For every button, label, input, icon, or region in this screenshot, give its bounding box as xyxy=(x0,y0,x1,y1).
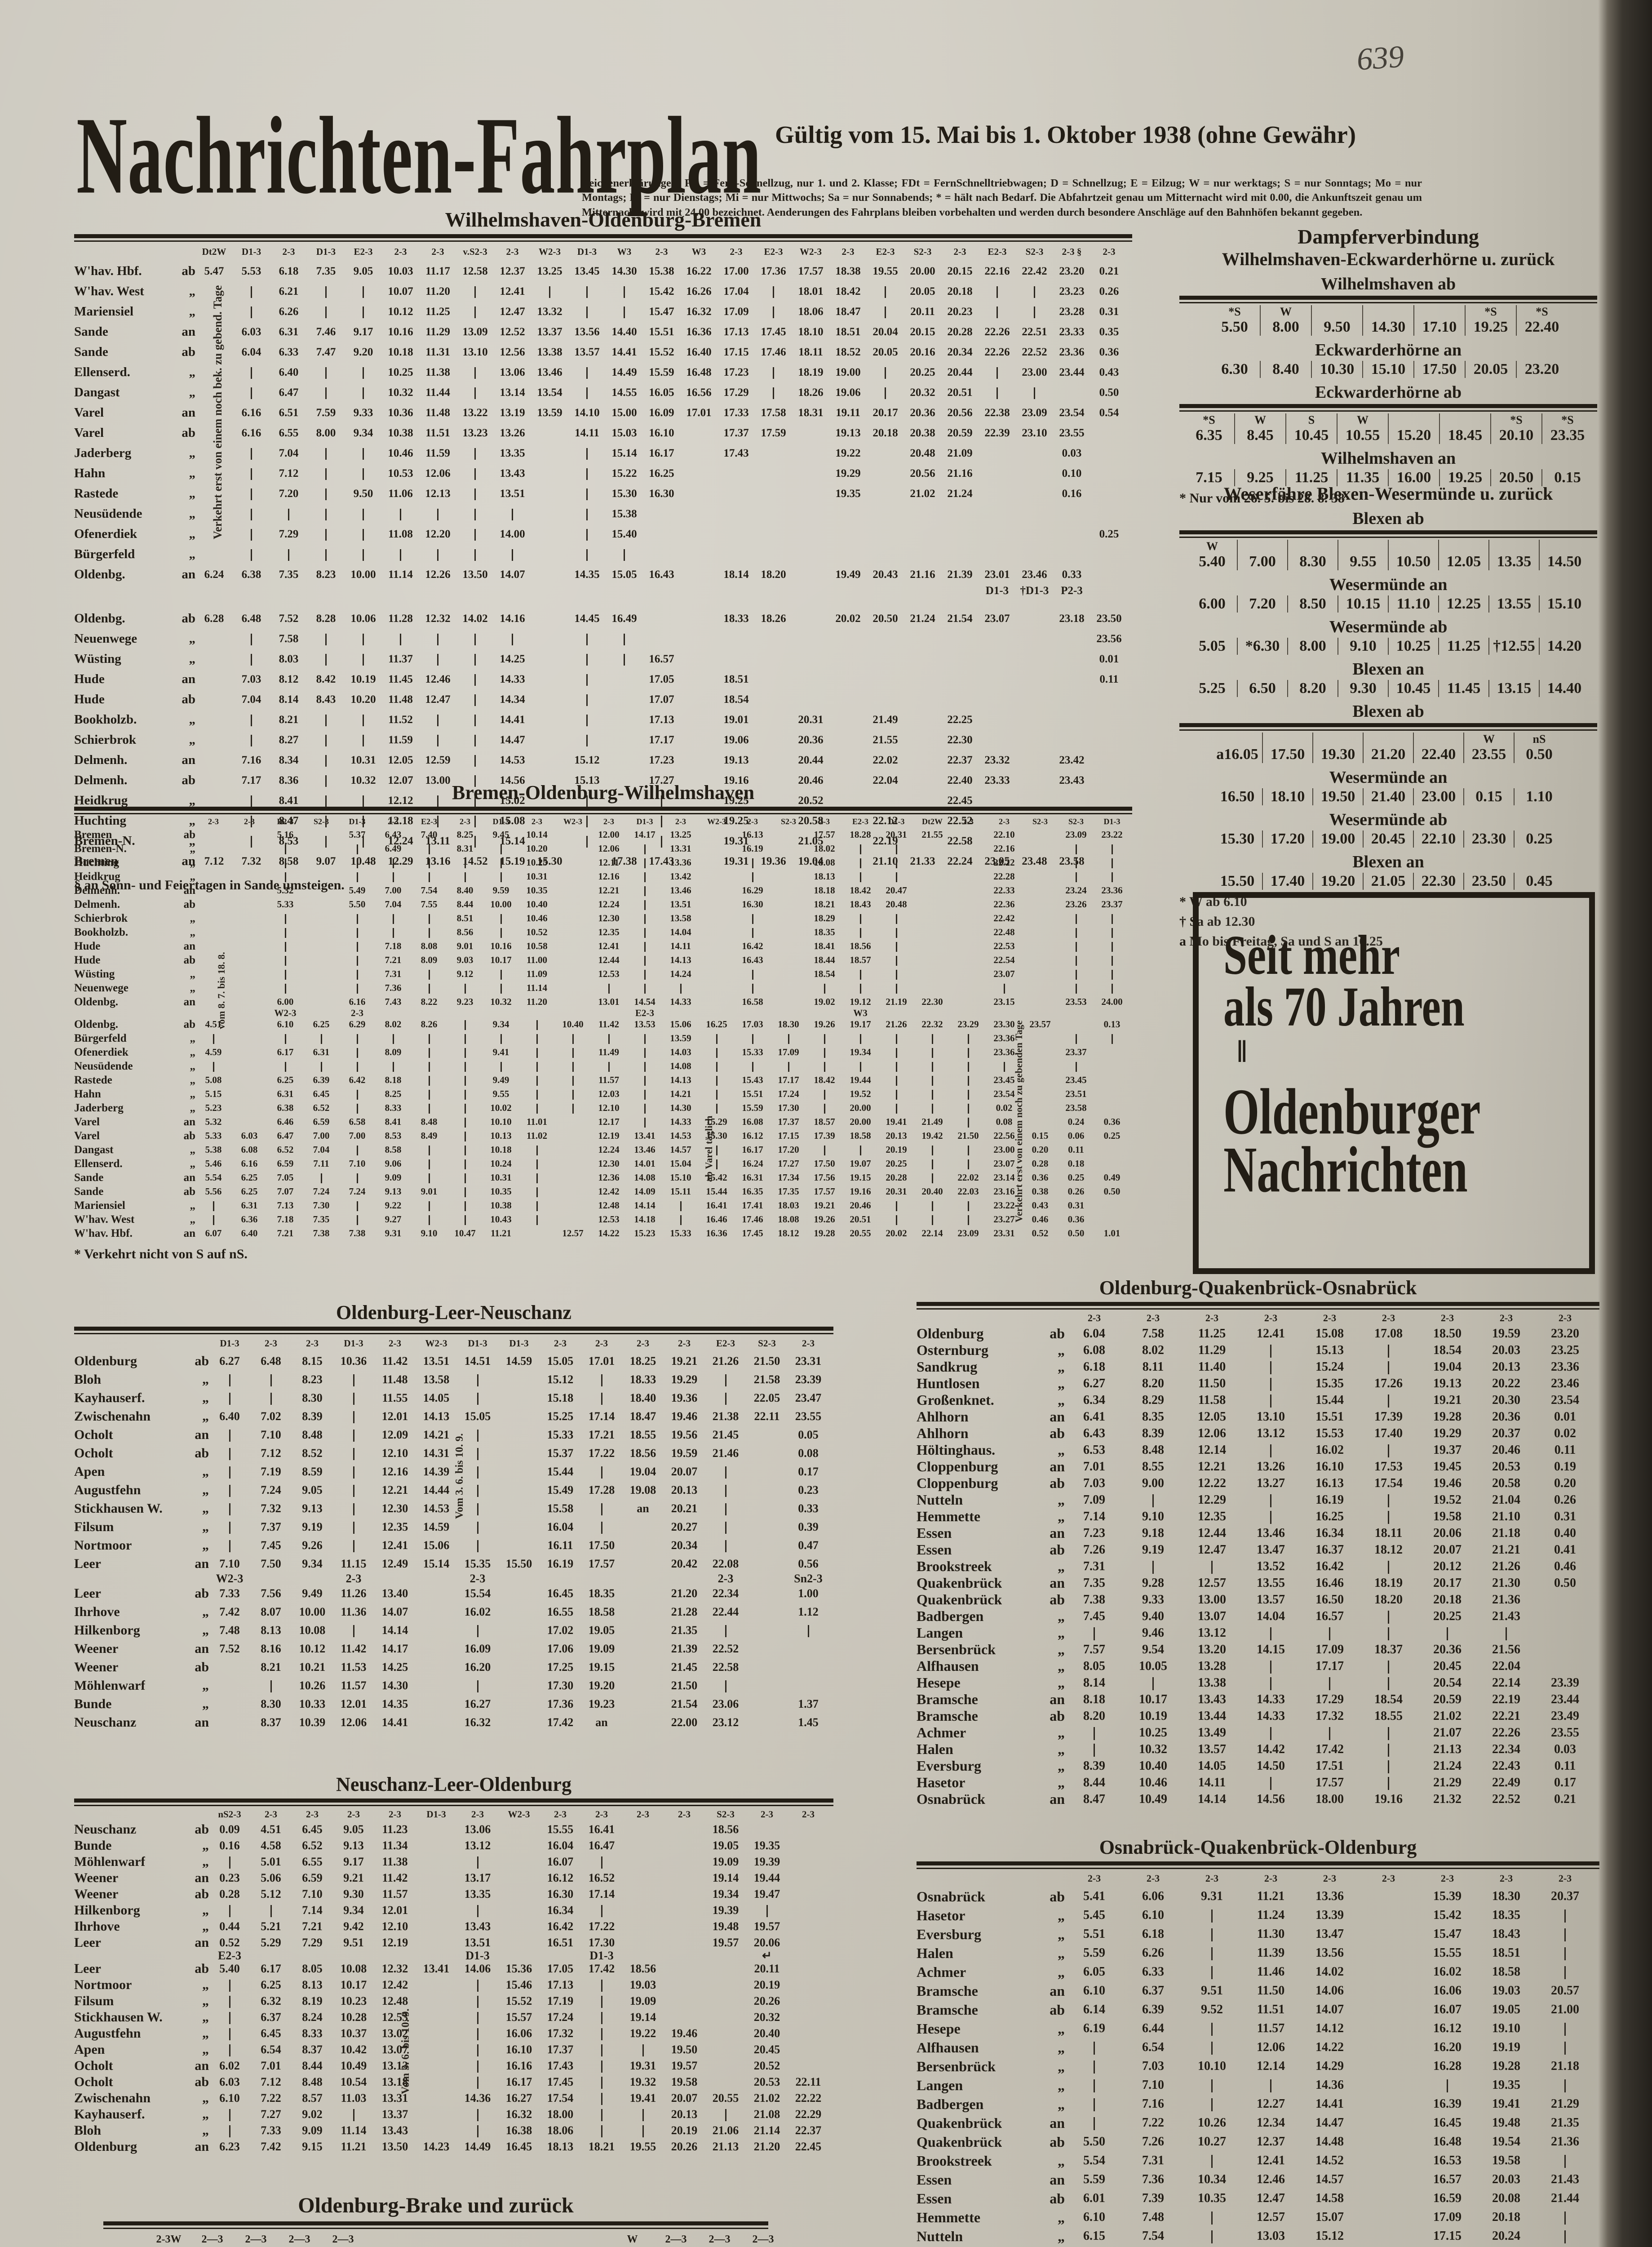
time-cell: 17.17 xyxy=(1300,1659,1359,1674)
time-cell: 10.24 xyxy=(483,1158,519,1169)
rotated-note: Verkehrt erst von einem noch zu gebenden… xyxy=(1013,1034,1025,1222)
station-name: Delmenh. xyxy=(74,753,127,768)
time-cell: 13.56 xyxy=(568,326,606,338)
time-cell: 2-3 xyxy=(447,817,483,826)
time-cell: 19.48 xyxy=(1477,2116,1536,2130)
time-cell xyxy=(457,2059,498,2073)
time-cell: 2-3 xyxy=(664,1338,705,1349)
time-cell: 22.11 xyxy=(746,1410,788,1423)
time-cell: 20.03 xyxy=(1477,1343,1536,1358)
time-cell: 7.22 xyxy=(250,2092,292,2105)
station-name: Bookholzb. xyxy=(74,712,137,727)
stop-skip-bar xyxy=(500,872,502,882)
time-cell: 23.57 xyxy=(1022,1019,1058,1030)
time-cell: 16.50 xyxy=(1213,788,1262,805)
time-cell xyxy=(771,1061,806,1072)
time-cell: 8.39 xyxy=(292,1410,333,1423)
time-cell: 14.20 xyxy=(1539,638,1589,655)
stop-skip-bar xyxy=(353,1503,354,1515)
table-row: Ocholtab6.037.128.4810.5413.1816.1717.45… xyxy=(74,2074,833,2090)
time-cell xyxy=(627,899,663,910)
station-cell: Oldenburgan xyxy=(74,2139,209,2154)
station-cell: Achmer„ xyxy=(917,1724,1065,1741)
stop-skip-bar xyxy=(997,306,998,318)
time-cell: 17.30 xyxy=(581,1936,622,1949)
time-cell xyxy=(1241,1509,1300,1523)
time-cell: 23.09 xyxy=(1058,829,1094,840)
station-name: Ellenserd. xyxy=(74,1158,123,1170)
time-cell xyxy=(581,2124,622,2138)
time-cell: 17.23 xyxy=(717,366,755,379)
stop-skip-bar xyxy=(824,1048,825,1058)
time-cell xyxy=(457,1978,498,1992)
stop-skip-bar xyxy=(474,468,476,480)
stop-skip-bar xyxy=(680,1215,682,1225)
time-cell: 19.58 xyxy=(1418,1510,1477,1524)
time-cell: 22.14 xyxy=(1477,1676,1536,1690)
stop-skip-bar xyxy=(437,549,438,561)
time-cell xyxy=(581,2043,622,2057)
table-row: Dangast„5.386.086.527.048.5810.1812.2413… xyxy=(74,1143,1132,1157)
time-cell: 20.07 xyxy=(664,2092,705,2105)
train-mark xyxy=(1363,733,1413,746)
stop-skip-bar xyxy=(725,1503,726,1515)
time-cell: 16.20 xyxy=(457,1661,498,1674)
time-cell: 21.45 xyxy=(664,1661,705,1674)
time-cell: 12.53 xyxy=(591,968,627,980)
table-row: Nortmoor„6.258.1310.1712.4215.4617.1319.… xyxy=(74,1977,833,1993)
time-cell xyxy=(1124,1675,1183,1690)
time-cell xyxy=(519,1214,555,1225)
stop-skip-bar xyxy=(716,1034,717,1044)
newspaper-page: 639 Nachrichten-Fahrplan Gültig vom 15. … xyxy=(0,0,1652,2247)
time-cell: 13.23 xyxy=(456,427,494,440)
time-cell: 9.30 xyxy=(333,1887,374,1901)
station-name: Hemmette xyxy=(917,2209,980,2226)
station-cell: Hudean xyxy=(74,940,195,953)
stop-skip-bar xyxy=(644,928,646,938)
time-cell: 17.57 xyxy=(581,1557,622,1571)
time-cell xyxy=(333,1446,374,1460)
station-cell: Oldenburgab xyxy=(917,1325,1065,1342)
stop-skip-bar xyxy=(474,529,476,541)
time-cell: 17.42 xyxy=(1300,1742,1359,1757)
time-cell: 13.25 xyxy=(663,829,699,840)
time-cell: 0.46 xyxy=(1022,1214,1058,1225)
time-cell xyxy=(333,1372,374,1386)
time-cell xyxy=(339,1144,375,1155)
departure-arrival-label: an xyxy=(182,405,195,420)
ad-line: als 70 Jahren xyxy=(1223,974,1554,1039)
time-cell: 12.47 xyxy=(419,693,456,706)
departure-arrival-label: ab xyxy=(1050,2002,1065,2018)
departure-arrival-label: „ xyxy=(1058,2209,1065,2226)
direction-label: Wesermünde ab xyxy=(1179,617,1597,637)
time-cell: 18.10 xyxy=(792,326,829,338)
time-cell: 20.18 xyxy=(1418,1593,1477,1607)
station-name: Nortmoor xyxy=(74,1538,132,1553)
stop-skip-bar xyxy=(586,509,588,520)
time-cell: 6.27 xyxy=(1065,1377,1124,1391)
time-cell: 17.05 xyxy=(643,673,680,686)
time-cell: 16.58 xyxy=(735,996,771,1008)
time-cell: 6.21 xyxy=(270,285,307,298)
time-cell: W2-3 xyxy=(699,817,735,826)
time-cell: 17.14 xyxy=(581,1410,622,1423)
time-cell: 19.22 xyxy=(829,447,867,460)
stop-skip-bar xyxy=(860,1146,861,1155)
stop-skip-bar xyxy=(465,1118,466,1128)
table-row: Leeran0.525.297.299.5112.1913.5116.5117.… xyxy=(74,1935,833,1951)
time-cell xyxy=(267,1061,303,1072)
station-name: Halen xyxy=(917,1945,953,1962)
time-cell: 5.59 xyxy=(1065,1946,1124,1960)
time-cell: 15.35 xyxy=(457,1557,498,1571)
time-cell: 0.40 xyxy=(1536,1526,1594,1541)
time-cell: 17.04 xyxy=(717,285,755,298)
stop-skip-bar xyxy=(1094,1744,1095,1757)
time-cell xyxy=(333,1501,374,1515)
time-cell: 22.21 xyxy=(1477,1709,1536,1723)
time-cell: 20.28 xyxy=(941,326,979,338)
time-cell: 11.45 xyxy=(382,673,419,686)
time-cell: 8.37 xyxy=(250,1716,292,1729)
time-cell: 12.05 xyxy=(382,754,419,767)
stop-skip-bar xyxy=(586,735,588,746)
time-cell xyxy=(1065,1742,1124,1756)
time-cell: 12.37 xyxy=(494,265,531,278)
stop-skip-bar xyxy=(860,1062,861,1072)
time-cell: 18.35 xyxy=(806,927,842,938)
time-cell: 15.12 xyxy=(1300,2229,1359,2243)
table-row: Oldenburgab6.276.488.1510.3611.4213.5114… xyxy=(74,1352,833,1370)
stop-skip-bar xyxy=(325,634,327,645)
station-cell: Leerab xyxy=(74,1961,209,1976)
time-cell: 9.05 xyxy=(292,1483,333,1497)
station-cell: W'hav. West„ xyxy=(74,1213,195,1226)
stop-skip-bar xyxy=(1270,1677,1271,1690)
time-cell: 15.58 xyxy=(540,1502,581,1515)
time-cell: 20.55 xyxy=(842,1228,878,1239)
station-cell: Sandean xyxy=(74,1172,195,1184)
stop-skip-bar xyxy=(393,872,394,882)
table-row: Filsum„6.328.1910.2312.4815.5217.1919.09… xyxy=(74,1993,833,2009)
stop-skip-bar xyxy=(229,1374,230,1386)
time-cell: 17.56 xyxy=(806,1172,842,1183)
stop-skip-bar xyxy=(896,872,897,882)
time-cell: 9.01 xyxy=(447,941,483,952)
departure-arrival-label: ab xyxy=(195,1446,209,1461)
time-cell: 11.55 xyxy=(374,1391,416,1405)
departure-arrival-label: an xyxy=(182,672,195,687)
time-cell xyxy=(606,632,643,645)
time-cell: 9.54 xyxy=(1124,1643,1183,1657)
time-cell xyxy=(568,632,606,645)
departure-arrival-label: ab xyxy=(1050,2134,1065,2150)
time-cell: 20.05 xyxy=(904,285,941,298)
stop-skip-bar xyxy=(357,984,358,994)
time-cell: 14.52 xyxy=(1300,2154,1359,2168)
time-cell xyxy=(209,1465,250,1479)
time-cell xyxy=(250,1679,292,1692)
time-cell xyxy=(267,913,303,924)
stop-skip-bar xyxy=(500,970,502,980)
time-cell: 20.53 xyxy=(746,2075,788,2089)
time-cell: 11.25 xyxy=(419,306,456,318)
time-cell: 20.45 xyxy=(1418,1659,1477,1674)
departure-arrival-label: an xyxy=(195,1556,209,1572)
stop-skip-bar xyxy=(586,367,588,379)
station-name: Heidkrug xyxy=(74,870,120,883)
time-cell: 7.00 xyxy=(303,1130,339,1141)
time-cell xyxy=(950,1075,986,1086)
time-cell: 21.38 xyxy=(705,1410,746,1423)
time-cell: 18.54 xyxy=(1359,1692,1418,1707)
time-cell: 10.25 xyxy=(382,366,419,379)
time-cell: 14.41 xyxy=(374,1716,416,1729)
time-cell: 0.28 xyxy=(1022,1158,1058,1169)
time-cell: 18.58 xyxy=(581,1605,622,1619)
time-cell: 17.29 xyxy=(1300,1692,1359,1707)
stop-skip-bar xyxy=(644,1104,646,1114)
time-cell xyxy=(627,871,663,882)
stop-skip-bar xyxy=(357,914,358,924)
time-cell xyxy=(914,1158,950,1169)
time-cell: 6.55 xyxy=(292,1855,333,1869)
time-cell: 21.35 xyxy=(664,1624,705,1637)
stop-skip-bar xyxy=(400,634,401,645)
time-cell: 10.25 xyxy=(519,857,555,868)
train-mark: *S xyxy=(1465,305,1516,319)
table-title: Oldenburg-Leer-Neuschanz xyxy=(74,1301,833,1324)
time-cell: 16.30 xyxy=(643,488,680,500)
time-cell xyxy=(1359,1559,1418,1573)
time-cell: 22.58 xyxy=(705,1661,746,1674)
departure-arrival-label: „ xyxy=(190,1199,196,1212)
time-cell: 6.10 xyxy=(209,2092,250,2105)
station-cell: Eversburg„ xyxy=(917,1758,1065,1774)
time-cell xyxy=(581,1855,622,1869)
station-cell: Cloppenburgab xyxy=(917,1475,1065,1492)
time-cell: 19.34 xyxy=(842,1047,878,1058)
stop-skip-bar xyxy=(363,367,364,379)
time-cell: 0.21 xyxy=(1090,265,1128,278)
time-cell: 21.24 xyxy=(941,488,979,500)
station-cell: Brookstreek„ xyxy=(917,2153,1065,2169)
time-cell: 20.00 xyxy=(842,1116,878,1128)
time-cell xyxy=(303,1061,339,1072)
time-cell: 21.18 xyxy=(1536,2059,1594,2074)
time-cell: 16.48 xyxy=(1418,2135,1477,2149)
stop-skip-bar xyxy=(1270,1378,1271,1391)
time-cell: 14.30 xyxy=(663,1102,699,1114)
times-row: 15.3017.2019.0020.4522.1023.300.25 xyxy=(1179,830,1597,848)
departure-arrival-label: „ xyxy=(1058,2039,1065,2056)
time-cell: 2-3 xyxy=(746,1809,788,1820)
station-name: Apen xyxy=(74,2042,105,2057)
time-cell: 18.47 xyxy=(829,306,867,318)
station-cell: Hahn„ xyxy=(74,1088,195,1101)
time-cell xyxy=(914,1144,950,1155)
time-cell xyxy=(1094,955,1130,966)
station-name: Hesepe xyxy=(917,2021,961,2037)
stop-skip-bar xyxy=(1388,1677,1389,1690)
stop-skip-bar xyxy=(642,2125,644,2137)
time-cell: 8.30 xyxy=(1287,553,1338,570)
table-row: Ofenerdiek„7.2911.0812.2014.0015.400.25 xyxy=(74,524,1132,544)
time-cell: 8.25 xyxy=(447,829,483,840)
time-cell xyxy=(411,913,447,924)
stop-skip-bar xyxy=(477,1905,478,1917)
time-cell xyxy=(842,1033,878,1044)
time-cell: 18.54 xyxy=(806,968,842,980)
time-cell: 6.19 xyxy=(1065,2021,1124,2036)
sub-header-row: E2-3D1-3D1-3↵ xyxy=(74,1951,833,1961)
time-cell: 17.09 xyxy=(1418,2210,1477,2225)
time-cell: 2-3 xyxy=(292,1809,333,1820)
time-cell: 16.45 xyxy=(1418,2116,1477,2130)
stop-skip-bar xyxy=(896,984,897,994)
time-cell: 9.09 xyxy=(375,1172,411,1183)
time-cell xyxy=(1359,1759,1418,1773)
time-cell: 16.32 xyxy=(680,306,717,318)
departure-arrival-label: „ xyxy=(202,1977,209,1993)
time-cell: 18.54 xyxy=(1418,1343,1477,1358)
time-cell: 15.59 xyxy=(643,366,680,379)
time-cell xyxy=(1241,1343,1300,1357)
time-cell: 11.31 xyxy=(419,346,456,359)
time-cell: 10.18 xyxy=(382,346,419,359)
time-cell: 15.55 xyxy=(540,1823,581,1836)
stop-skip-bar xyxy=(353,1466,354,1479)
departure-arrival-label: „ xyxy=(202,1854,209,1870)
time-cell: 21.20 xyxy=(664,1587,705,1600)
departure-arrival-label: „ xyxy=(190,968,196,981)
time-cell: 0.25 xyxy=(1094,1130,1130,1141)
time-cell xyxy=(663,1214,699,1225)
time-cell: 23.20 xyxy=(1536,1327,1594,1341)
time-cell: 23.47 xyxy=(788,1391,829,1405)
time-cell xyxy=(606,548,643,560)
departure-arrival-label: „ xyxy=(189,446,196,461)
time-cell: 15.33 xyxy=(540,1428,581,1442)
time-cell: 14.47 xyxy=(1300,2116,1359,2130)
station-name: Varel xyxy=(74,426,104,440)
stop-skip-bar xyxy=(229,1522,230,1534)
time-cell xyxy=(209,1855,250,1869)
time-cell: 16.25 xyxy=(1300,1510,1359,1524)
time-cell: 22.38 xyxy=(979,407,1016,419)
time-cell xyxy=(307,305,345,318)
table-row: Hudeab7.048.148.4310.2011.4812.4714.3417… xyxy=(74,689,1132,710)
station-name: Ihrhove xyxy=(74,1919,120,1934)
time-cell: 14.08 xyxy=(663,1061,699,1072)
table-row: Quakenbrückab5.507.2610.2712.3714.4816.4… xyxy=(917,2132,1599,2151)
time-cell: 20.19 xyxy=(746,1978,788,1992)
time-cell: 7.00 xyxy=(375,885,411,896)
stop-skip-bar xyxy=(896,970,897,980)
time-cell: 12.17 xyxy=(591,1116,627,1128)
station-name: Hude xyxy=(74,940,100,953)
time-cell xyxy=(1536,2040,1594,2055)
time-cell: 10.35 xyxy=(1183,2191,1241,2206)
departure-arrival-label: „ xyxy=(1058,1964,1065,1981)
group-rule xyxy=(1179,530,1597,538)
station-cell: Neusüdende„ xyxy=(74,1060,195,1073)
stop-skip-bar xyxy=(512,634,513,645)
time-cell xyxy=(705,1501,746,1515)
stop-skip-bar xyxy=(357,858,358,868)
time-cell: 23.07 xyxy=(986,968,1022,980)
time-cell: 7.33 xyxy=(209,1587,250,1600)
time-cell: 19.57 xyxy=(705,1936,746,1949)
time-cell: 0.24 xyxy=(1058,1116,1094,1128)
table-top-rule xyxy=(917,1861,1599,1869)
time-cell: 19.42 xyxy=(914,1130,950,1141)
time-cell: 0.41 xyxy=(1536,1543,1594,1557)
station-cell: Brookstreek„ xyxy=(917,1558,1065,1575)
station-name: Achmer xyxy=(917,1724,966,1741)
station-name: Hilkenborg xyxy=(74,1623,140,1638)
station-cell: Bloh„ xyxy=(74,1372,209,1387)
time-cell xyxy=(735,1033,771,1044)
stop-skip-bar xyxy=(808,1625,809,1637)
time-cell: 13.49 xyxy=(1183,1726,1241,1740)
time-cell: 9.17 xyxy=(333,1855,374,1869)
time-cell: 12.47 xyxy=(1183,1543,1241,1557)
time-cell: 8.30 xyxy=(250,1697,292,1711)
time-cell: 22.22 xyxy=(986,857,1022,868)
time-cell: 9.55 xyxy=(483,1088,519,1100)
time-cell: 17.39 xyxy=(1359,1410,1418,1424)
time-cell: 21.55 xyxy=(914,829,950,840)
stop-skip-bar xyxy=(968,1146,969,1155)
time-cell: 16.43 xyxy=(643,568,680,581)
time-cell xyxy=(233,386,270,399)
time-cell: 16.57 xyxy=(643,653,680,666)
train-mark: nS xyxy=(1514,733,1564,746)
time-cell xyxy=(209,2124,250,2138)
stop-skip-bar xyxy=(1034,286,1035,298)
time-cell: 19.04 xyxy=(1418,1360,1477,1374)
time-cell: 21.16 xyxy=(941,467,979,480)
departure-arrival-label: an xyxy=(1050,1691,1065,1708)
time-cell: 16.17 xyxy=(735,1144,771,1155)
time-cell xyxy=(267,955,303,966)
time-cell xyxy=(1359,1509,1418,1523)
time-cell: 5.12 xyxy=(250,1887,292,1901)
time-cell: D1-3 xyxy=(457,1338,498,1349)
station-name: Bloh xyxy=(74,1372,101,1387)
time-cell: 14.53 xyxy=(663,1130,699,1141)
time-cell: 15.05 xyxy=(606,568,643,581)
time-cell xyxy=(339,968,375,980)
time-cell: 22.40 xyxy=(1516,319,1567,336)
departure-arrival-label: ab xyxy=(195,1887,209,1902)
time-cell xyxy=(735,1061,771,1072)
time-cell: 7.21 xyxy=(267,1228,303,1239)
time-cell: 0.18 xyxy=(1058,1158,1094,1169)
time-cell: 13.37 xyxy=(531,326,568,338)
table-row: Heidkrug„10.3112.1613.4218.1322.28 xyxy=(74,870,1132,884)
time-cell: 15.35 xyxy=(1300,1377,1359,1391)
time-cell: 17.30 xyxy=(771,1102,806,1114)
stop-skip-bar xyxy=(860,858,861,868)
time-cell: 19.16 xyxy=(1359,1792,1418,1807)
departure-arrival-label: „ xyxy=(1058,1658,1065,1674)
time-cell: 7.01 xyxy=(250,2059,292,2073)
departure-arrival-label: „ xyxy=(1058,1741,1065,1758)
